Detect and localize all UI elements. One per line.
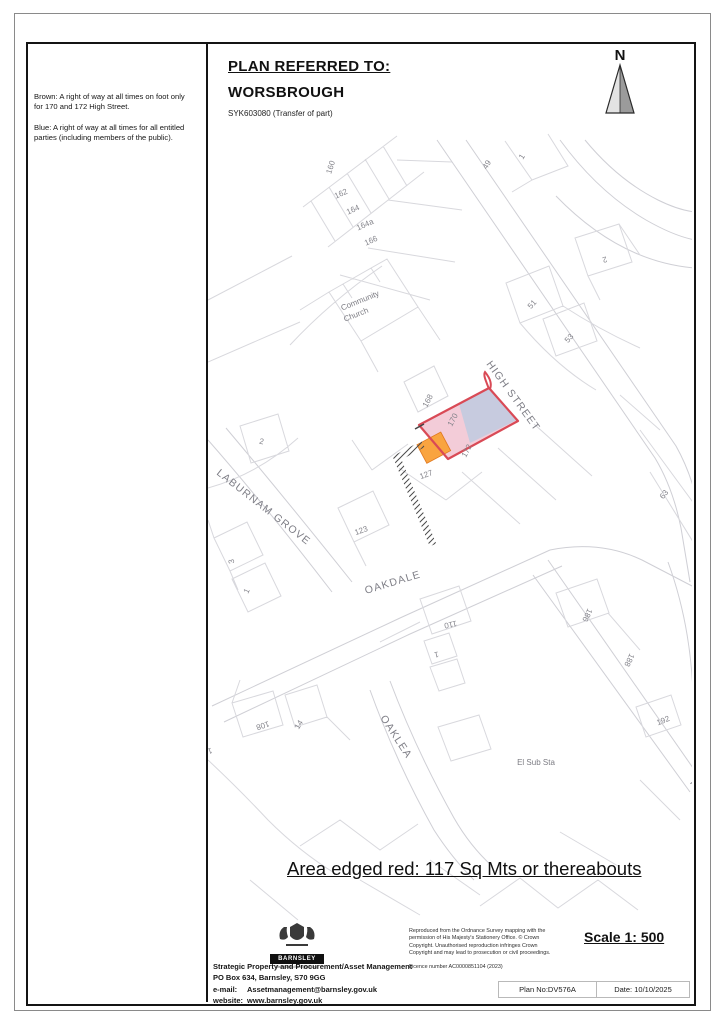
map-label: 14 [293,718,306,731]
map-label: 192 [655,714,671,728]
plan-date: Date: 10/10/2025 [596,981,690,998]
copyright-block: Reproduced from the Ordnance Survey mapp… [409,928,561,971]
map-label: 2 [258,437,265,447]
plot-red-edge-hook [484,372,490,389]
map-label: 1 [433,650,440,660]
contact-block: e-mail:Assetmanagement@barnsley.gov.uk w… [213,984,377,1007]
map-label: El Sub Sta [517,758,555,767]
plan-date-box: Plan No:DV576A Date: 10/10/2025 [498,981,690,998]
north-arrow-icon [601,63,639,115]
north-label: N [601,48,639,63]
map-road-lines [208,140,692,880]
map-label: 49 [481,158,494,171]
map-label: 3 [227,558,237,564]
email-label: e-mail: [213,984,247,995]
department-address: Strategic Property and Procurement/Asset… [213,962,412,983]
website-label: website: [213,995,247,1006]
plan-town: WORSBROUGH [228,84,390,101]
map-label: 127 [418,468,434,481]
os-copyright-text: Reproduced from the Ordnance Survey mapp… [409,928,561,957]
map-label: 164 [345,203,361,217]
area-note: Area edged red: 117 Sq Mts or thereabout… [287,858,641,880]
title-block: PLAN REFERRED TO: WORSBROUGH SYK603080 (… [228,58,390,118]
licence-number: Licence number AC0000851104 (2023) [409,964,561,971]
map-label: 110 [443,619,458,631]
website-value: www.barnsley.gov.uk [247,996,322,1005]
map-label: 53 [563,332,576,345]
map-label: 188 [622,652,636,668]
email-value: Assetmanagement@barnsley.gov.uk [247,985,377,994]
department-line2: PO Box 634, Barnsley, S70 9GG [213,973,412,984]
map-label: 162 [333,187,349,201]
map-label: 160 [324,159,337,175]
email-row: e-mail:Assetmanagement@barnsley.gov.uk [213,984,377,995]
map-label: 2 [601,254,609,264]
map-canvas: 160162164164a166CommunityChurch491251536… [208,42,692,1000]
map-label: 51 [526,298,539,311]
north-arrow: N [601,48,639,120]
plan-number: Plan No:DV576A [498,981,597,998]
plan-title: PLAN REFERRED TO: [228,58,390,75]
department-line1: Strategic Property and Procurement/Asset… [213,962,412,973]
map-label: 166 [363,234,379,248]
subject-plot [397,372,518,545]
map-label: LABURNAM GROVE [214,467,313,548]
map-label: 164a [355,217,375,233]
barnsley-crest-icon [274,921,320,948]
legend-sidebar: Brown: A right of way at all times on fo… [26,42,208,1002]
blue-right-of-way-note: Blue: A right of way at all times for al… [34,123,192,144]
map-label: OAKDALE [363,568,422,596]
scale-label: Scale 1: 500 [584,929,664,945]
map-label: 168 [421,392,435,408]
brown-right-of-way-note: Brown: A right of way at all times on fo… [34,92,192,113]
legend-notes: Brown: A right of way at all times on fo… [34,92,192,154]
map-label: 1 [242,587,252,595]
plan-reference: SYK603080 (Transfer of part) [228,109,390,118]
map-label: 10 [208,746,213,757]
website-row: website:www.barnsley.gov.uk [213,995,377,1006]
map-label: 63 [658,488,671,501]
